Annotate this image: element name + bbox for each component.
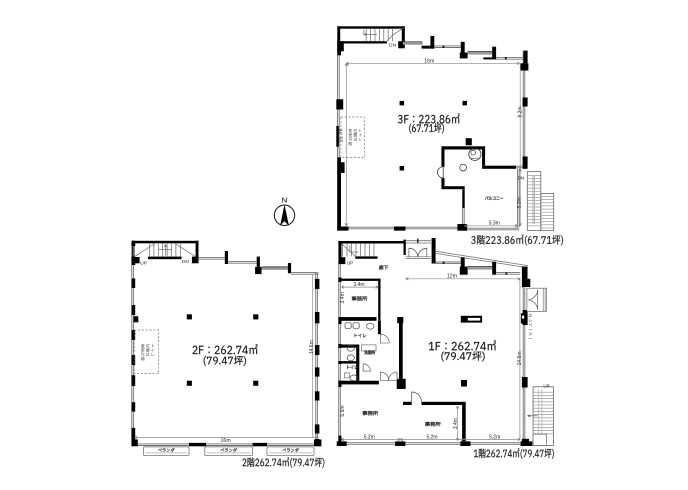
svg-text:5.6m: 5.6m: [340, 405, 346, 416]
svg-text:3.4m: 3.4m: [453, 418, 459, 429]
svg-text:5.2m: 5.2m: [489, 434, 500, 440]
svg-text:5.2m: 5.2m: [426, 434, 437, 440]
svg-text:3.4m: 3.4m: [340, 292, 346, 303]
svg-text:15.7m: 15.7m: [339, 129, 345, 143]
svg-text:UP: UP: [347, 261, 354, 267]
svg-text:14.6m: 14.6m: [517, 351, 523, 365]
svg-text:12m: 12m: [447, 274, 457, 280]
svg-text:UP: UP: [140, 261, 147, 267]
svg-text:DN: DN: [182, 259, 189, 265]
svg-text:DN: DN: [518, 176, 524, 181]
svg-text:N: N: [282, 195, 287, 204]
svg-text:DN: DN: [389, 43, 397, 49]
svg-text:3.4m: 3.4m: [353, 282, 364, 288]
svg-text:5.3m: 5.3m: [489, 220, 500, 226]
svg-text:UP: UP: [543, 384, 549, 389]
svg-text:16m: 16m: [424, 58, 434, 64]
svg-text:5.3m: 5.3m: [517, 197, 523, 208]
svg-text:9.2m: 9.2m: [518, 106, 524, 117]
svg-text:5.2m: 5.2m: [364, 434, 375, 440]
svg-text:16m: 16m: [221, 438, 231, 444]
svg-text:14.6m: 14.6m: [309, 340, 315, 354]
